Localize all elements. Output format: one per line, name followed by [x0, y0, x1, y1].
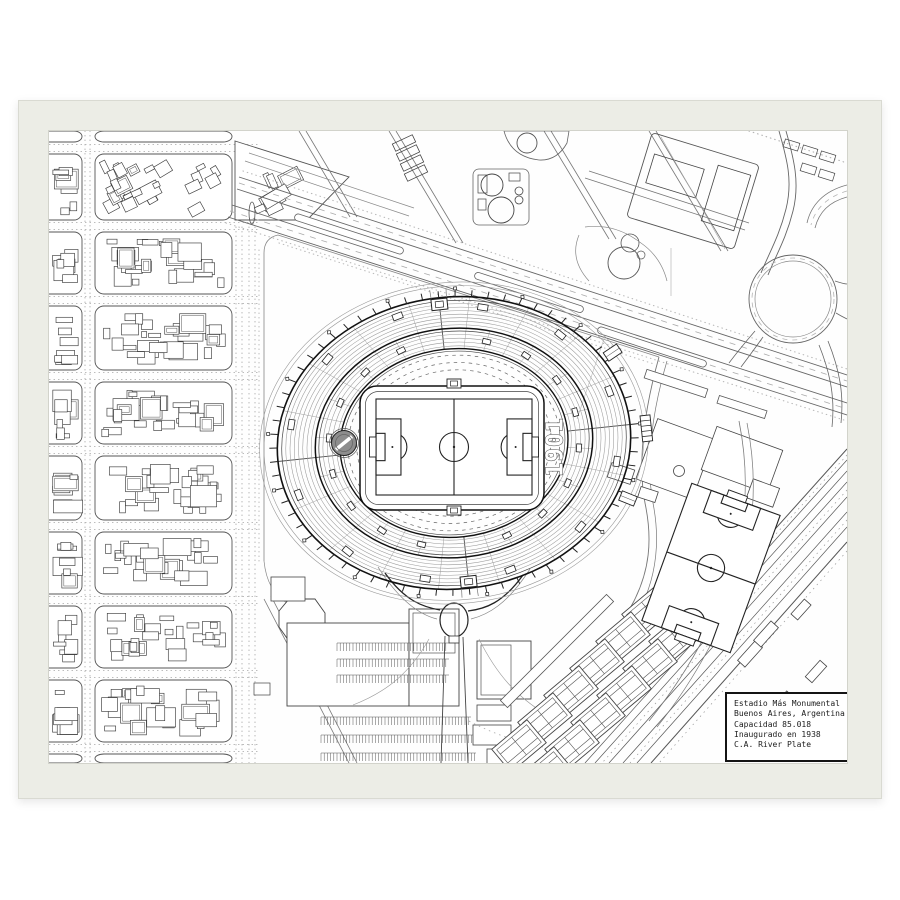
picture-frame-mat: 1901 Estadio Más Monumental Buenos Aires…	[18, 100, 882, 799]
street-grid	[49, 131, 261, 763]
info-line-year: Inaugurado en 1938	[734, 730, 847, 740]
info-box: Estadio Más Monumental Buenos Aires, Arg…	[725, 692, 847, 762]
map-print: 1901 Estadio Más Monumental Buenos Aires…	[49, 131, 847, 763]
year-label: 1901	[543, 417, 569, 476]
info-line-capacity: Capacidad 85.018	[734, 720, 847, 730]
info-line-city: Buenos Aires, Argentina	[734, 709, 847, 719]
soccer-pitch	[370, 399, 539, 495]
stadium-neighborhood-map: 1901	[49, 131, 847, 763]
stadium: 1901	[244, 263, 668, 623]
framed-map-print: 1901 Estadio Más Monumental Buenos Aires…	[0, 0, 900, 900]
info-line-title: Estadio Más Monumental	[734, 699, 847, 709]
info-line-club: C.A. River Plate	[734, 740, 847, 750]
top-blocks	[235, 131, 847, 296]
